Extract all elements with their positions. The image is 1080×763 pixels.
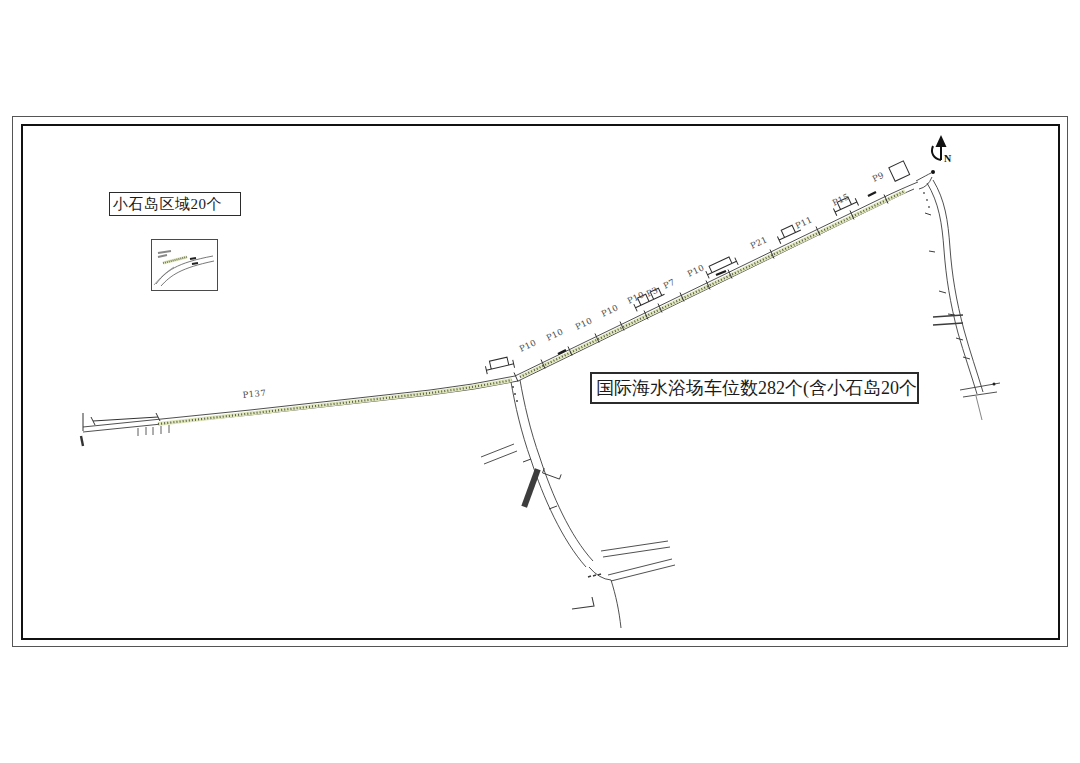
parking-count-label: P3 [645,285,660,299]
parking-count-label: P10 [545,326,565,343]
inset-tiny-text [158,251,171,257]
parking-count-label: P10 [626,289,646,306]
top-junction [916,170,996,386]
north-arrow-icon: N [932,135,952,164]
parking-count-label: P7 [662,277,677,291]
site-plan-canvas: N P137P10P10P10P10P10P3P7P10P21P11P15P9 … [0,0,1080,763]
parking-count-label: P15 [831,191,851,208]
right-road [925,180,1000,420]
parking-count-labels: P137P10P10P10P10P10P3P7P10P21P11P15P9 [242,170,886,400]
inset-roads [152,240,214,287]
parking-count-label: P10 [574,315,594,332]
parking-count-label: P9 [871,170,886,184]
west-end-structures [81,413,169,446]
xiaoshidao-inset-map [151,239,218,291]
xiaoshidao-area-label-box: 小石岛区域20个 [109,192,241,216]
north-label: N [944,153,952,164]
parking-count-label: P137 [242,388,266,400]
parking-count-label: P10 [686,262,706,279]
parking-count-label: P11 [794,214,814,231]
total-parking-label-box: 国际海水浴场车位数282个(含小石岛20个) [590,372,919,404]
south-road-dark-bar [521,468,540,508]
parking-count-label: P10 [600,302,620,319]
parking-count-label: P21 [749,234,769,251]
parking-count-label: P10 [518,337,538,354]
